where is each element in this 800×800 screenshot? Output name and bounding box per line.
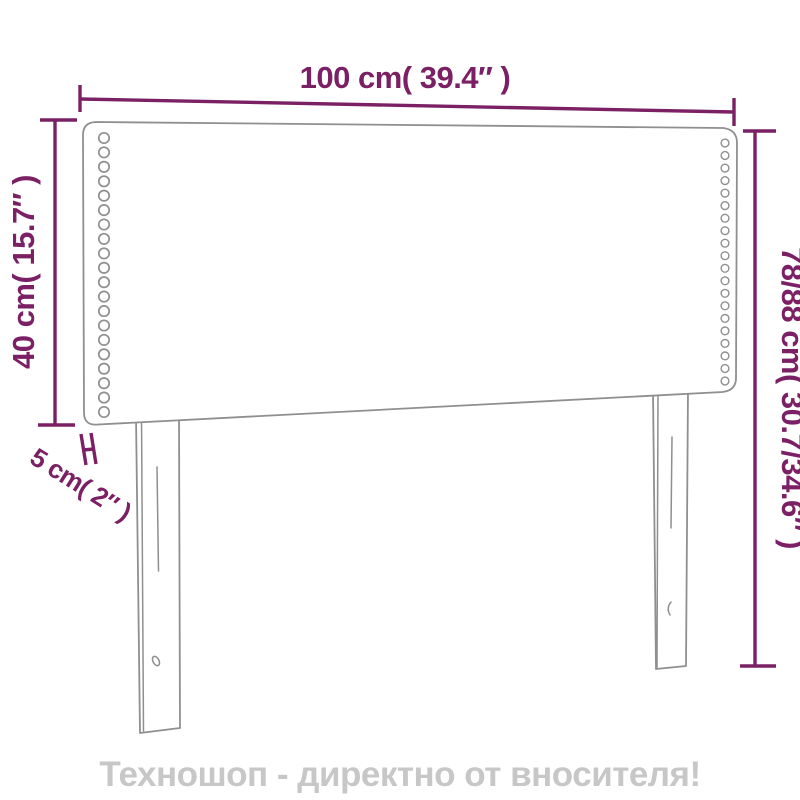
headboard-drawing — [83, 122, 737, 733]
footer-watermark: Техношоп - директно от вносителя! — [0, 757, 800, 792]
nail-dot — [99, 191, 109, 201]
headboard-panel — [83, 122, 737, 425]
dimension-width: 100 cm( 39.4″ ) — [80, 60, 734, 126]
right-leg-slot — [671, 437, 672, 528]
nail-dot — [721, 202, 729, 210]
nail-dot — [99, 147, 109, 157]
nail-dot — [721, 239, 729, 247]
nail-dot — [721, 365, 729, 373]
nail-dot — [99, 378, 109, 388]
nail-dot — [721, 152, 729, 160]
dimension-label-height-left: 40 cm( 15.7″ ) — [6, 175, 41, 369]
nail-dot — [99, 306, 109, 316]
right-leg-edge-line — [657, 391, 658, 668]
nail-dot — [721, 277, 729, 285]
dimension-line — [83, 449, 94, 450]
nail-dot — [721, 214, 729, 222]
headboard-diagram: 100 cm( 39.4″ ) 40 cm( 15.7″ ) 78/88 cm(… — [0, 0, 800, 800]
nail-dot — [721, 264, 729, 272]
dimension-height-right: 78/88 cm( 30.7/34.6″ ) — [740, 131, 800, 666]
dimension-label-width: 100 cm( 39.4″ ) — [300, 60, 511, 95]
nail-dot — [99, 219, 109, 229]
nail-dot — [99, 234, 109, 244]
nail-dot — [721, 315, 729, 323]
dimension-depth: 5 cm( 2″ ) — [25, 433, 137, 527]
nail-dot — [99, 248, 109, 258]
nail-dot — [721, 189, 729, 197]
nail-dot — [721, 302, 729, 310]
nail-dot — [721, 139, 729, 147]
nail-dot — [99, 133, 109, 143]
nail-dot — [99, 162, 109, 172]
left-leg — [136, 414, 180, 733]
nail-dot — [721, 252, 729, 260]
nail-dot — [721, 327, 729, 335]
nail-dot — [99, 320, 109, 330]
nail-dot — [721, 377, 729, 385]
dimension-height-left: 40 cm( 15.7″ ) — [6, 120, 77, 425]
nail-dot — [99, 176, 109, 186]
dimension-line — [80, 99, 734, 112]
product-dimension-image: 100 cm( 39.4″ ) 40 cm( 15.7″ ) 78/88 cm(… — [0, 0, 800, 800]
dimension-label-depth: 5 cm( 2″ ) — [25, 442, 137, 527]
nail-dot — [99, 335, 109, 345]
right-leg — [653, 389, 688, 669]
nail-dot — [721, 164, 729, 172]
nail-dot — [721, 352, 729, 360]
nail-dot — [99, 364, 109, 374]
nail-dot — [99, 392, 109, 402]
dimension-label-height-right: 78/88 cm( 30.7/34.6″ ) — [775, 247, 800, 549]
nail-dot — [99, 277, 109, 287]
nail-dot — [99, 407, 109, 417]
nail-dot — [721, 227, 729, 235]
nail-dot — [99, 291, 109, 301]
nail-dot — [99, 205, 109, 215]
nail-dot — [721, 289, 729, 297]
nail-dot — [721, 340, 729, 348]
nail-dot — [99, 263, 109, 273]
nail-dot — [721, 177, 729, 185]
nail-dot — [99, 349, 109, 359]
